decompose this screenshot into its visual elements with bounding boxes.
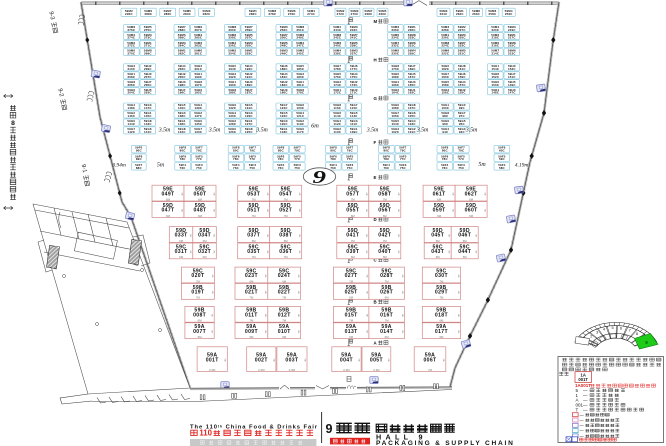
svg-text:3M: 3M [367,291,369,294]
svg-text:191C: 191C [245,75,253,79]
svg-text:150C: 150C [491,83,499,87]
svg-text:76C: 76C [330,166,337,170]
svg-text:229C: 229C [408,52,416,56]
svg-text:029T: 029T [435,290,449,296]
svg-text:131C: 131C [245,106,253,110]
svg-text:89C: 89C [136,157,143,161]
svg-text:186C: 186C [280,67,288,71]
svg-text:272C: 272C [127,44,135,48]
svg-text:014T: 014T [380,329,394,335]
svg-text:199C: 199C [194,75,202,79]
svg-text:102C: 102C [391,130,399,134]
svg-text:256C: 256C [228,44,236,48]
svg-text:6M: 6M [203,239,208,243]
svg-text:184C: 184C [280,75,288,79]
svg-text:6M: 6M [284,239,289,243]
svg-text:77C: 77C [347,157,354,161]
svg-text:010T: 010T [278,329,292,335]
svg-text:3M: 3M [444,359,446,362]
svg-text:8: 8 [11,120,15,127]
svg-text:286C: 286C [164,12,172,16]
svg-text:5m: 5m [157,163,164,169]
svg-text:243C: 243C [350,28,358,32]
svg-text:7M: 7M [383,197,388,201]
svg-text:263C: 263C [194,44,202,48]
svg-text:178C: 178C [333,67,341,71]
svg-text:7M: 7M [252,214,257,218]
svg-text:270C: 270C [351,12,359,16]
svg-text:3M: 3M [485,209,487,212]
svg-text:7M: 7M [284,197,289,201]
svg-text:7M: 7M [385,319,390,323]
svg-text:3M: 3M [268,192,270,195]
svg-text:3M: 3M [453,209,455,212]
svg-text:80C: 80C [383,149,390,153]
svg-text:6M: 6M [383,214,388,218]
svg-text:133C: 133C [194,130,202,134]
svg-text:4.19m: 4.19m [515,162,529,169]
svg-text:3M: 3M [399,234,401,237]
svg-text:7M: 7M [282,319,287,323]
svg-text:78C: 78C [442,157,449,161]
svg-text:3M: 3M [266,314,268,317]
svg-text:117C: 117C [297,130,305,134]
svg-text:7M: 7M [249,296,254,300]
svg-text:3.5m: 3.5m [366,128,379,134]
svg-text:262C: 262C [456,12,464,16]
svg-text:157C: 157C [458,83,466,87]
svg-text:76C: 76C [180,166,187,170]
svg-text:0.3M: 0.3M [258,368,265,372]
svg-text:136C: 136C [178,122,186,126]
svg-text:6M: 6M [249,335,254,339]
svg-text:235C: 235C [408,28,416,32]
svg-text:80C: 80C [442,149,449,153]
svg-text:193C: 193C [245,67,253,71]
svg-text:79C: 79C [400,149,407,153]
svg-text:128C: 128C [228,122,236,126]
svg-text:9: 9 [645,340,648,345]
svg-text:88C: 88C [136,166,143,170]
svg-text:3M: 3M [402,291,404,294]
svg-text:228C: 228C [441,28,449,32]
svg-text:240C: 240C [333,44,341,48]
svg-text:3M: 3M [268,234,270,237]
svg-text:7M: 7M [439,296,444,300]
svg-text:280C: 280C [249,12,257,16]
svg-text:94C: 94C [442,130,449,134]
svg-text:258C: 258C [228,36,236,40]
svg-text:75C: 75C [347,166,354,170]
svg-text:005T: 005T [370,357,384,363]
svg-text:3M: 3M [212,274,214,277]
svg-text:181C: 181C [296,83,304,87]
svg-text:3M: 3M [459,330,461,333]
svg-text:3M: 3M [300,209,302,212]
svg-text:266C: 266C [379,12,387,16]
svg-text:78C: 78C [330,157,337,161]
svg-text:3M: 3M [476,250,478,253]
svg-text:59C: 59C [499,157,506,161]
svg-text:6: 6 [620,325,622,330]
svg-text:202C: 202C [178,67,186,71]
svg-text:147C: 147C [144,106,152,110]
svg-text:262C: 262C [178,52,186,56]
svg-text:6M: 6M [463,239,468,243]
svg-text:60C: 60C [499,149,506,153]
svg-text:7M: 7M [439,279,444,283]
svg-text:111C: 111C [350,122,358,126]
svg-text:115C: 115C [350,106,358,110]
svg-text:6M: 6M [437,197,442,201]
svg-text:192C: 192C [228,75,236,79]
svg-text:3M: 3M [485,192,487,195]
svg-text:156C: 156C [441,91,449,95]
svg-text:3M: 3M [225,359,227,362]
svg-text:77C: 77C [196,157,203,161]
svg-text:189C: 189C [245,83,253,87]
svg-text:270C: 270C [127,52,135,56]
svg-text:142C: 142C [127,130,135,134]
svg-text:99C: 99C [459,106,466,110]
svg-text:3.5m: 3.5m [465,128,478,134]
svg-text:197C: 197C [194,83,202,87]
svg-text:77C: 77C [458,157,465,161]
svg-text:274C: 274C [127,36,135,40]
svg-text:7M: 7M [249,319,254,323]
svg-text:101C: 101C [408,130,416,134]
svg-text:6M: 6M [439,335,444,339]
svg-text:036T: 036T [279,249,293,255]
svg-text:218C: 218C [491,36,499,40]
svg-text:75C: 75C [294,166,301,170]
svg-text:148C: 148C [491,91,499,95]
svg-text:98C: 98C [442,114,449,118]
svg-text:153C: 153C [508,67,516,71]
svg-text:3M: 3M [389,359,391,362]
svg-text:190C: 190C [228,83,236,87]
svg-text:PACKAGING & SUPPLY CHAIN: PACKAGING & SUPPLY CHAIN [376,440,515,446]
svg-text:M: M [374,19,378,24]
svg-text:143C: 143C [144,122,152,126]
svg-text:77C: 77C [250,157,257,161]
svg-text:194C: 194C [228,67,236,71]
svg-text:054T: 054T [279,191,293,197]
svg-text:265C: 265C [194,36,202,40]
svg-text:3M: 3M [268,209,270,212]
svg-text:046T: 046T [458,233,472,239]
svg-text:057T: 057T [346,191,360,197]
svg-text:223C: 223C [458,44,466,48]
svg-text:6M: 6M [166,214,171,218]
svg-text:023T: 023T [245,273,259,279]
svg-text:75C: 75C [458,166,465,170]
svg-text:225C: 225C [458,36,466,40]
svg-text:3M: 3M [214,209,216,212]
svg-text:118C: 118C [280,130,288,134]
svg-text:3M: 3M [367,209,369,212]
svg-text:3M: 3M [214,234,216,237]
svg-text:6M: 6M [437,214,442,218]
svg-text:123C: 123C [296,106,304,110]
svg-text:97C: 97C [459,114,466,118]
svg-text:275C: 275C [144,28,152,32]
svg-text:3M: 3M [359,359,361,362]
svg-text:170C: 170C [391,67,399,71]
svg-text:3M: 3M [459,291,461,294]
svg-text:019T: 019T [191,290,205,296]
svg-text:026T: 026T [380,290,394,296]
svg-text:3M: 3M [367,330,369,333]
svg-text:160C: 160C [441,75,449,79]
svg-text:0.3M: 0.3M [373,368,380,372]
svg-text:3.5m: 3.5m [158,128,171,134]
svg-text:165C: 165C [408,83,416,87]
svg-text:6M: 6M [439,319,444,323]
svg-text:187C: 187C [245,91,253,95]
svg-text:2: 2 [590,334,592,339]
svg-text:042T: 042T [378,233,392,239]
svg-text:261C: 261C [194,52,202,56]
svg-text:110: 110 [199,429,212,438]
svg-text:108C: 108C [391,106,399,110]
svg-text:001T: 001T [206,357,220,363]
svg-text:80C: 80C [330,149,337,153]
svg-text:013T: 013T [345,329,359,335]
svg-text:183C: 183C [296,75,304,79]
svg-text:B: B [374,299,377,304]
svg-text:151C: 151C [508,75,516,79]
svg-text:6M: 6M [198,335,203,339]
svg-text:028T: 028T [380,273,394,279]
svg-text:251C: 251C [296,28,304,32]
svg-text:6M: 6M [249,279,254,283]
svg-text:114C: 114C [334,114,342,118]
svg-text:3M: 3M [266,274,268,277]
svg-text:125C: 125C [245,130,253,134]
svg-text:6M: 6M [351,214,356,218]
svg-text:3M: 3M [191,250,193,253]
svg-text:140C: 140C [178,106,186,110]
svg-text:3M: 3M [299,274,301,277]
svg-text:022T: 022T [278,290,292,296]
svg-text:166C: 166C [391,83,399,87]
svg-text:6M: 6M [198,214,203,218]
svg-text:6m: 6m [311,123,319,130]
svg-text:78C: 78C [180,157,187,161]
svg-text:7M: 7M [428,368,433,372]
svg-text:290C: 290C [125,12,133,16]
svg-text:276C: 276C [127,28,135,32]
svg-text:213C: 213C [508,52,516,56]
svg-text:6M: 6M [349,335,354,339]
svg-text:047T: 047T [161,208,175,214]
svg-text:141C: 141C [144,130,152,134]
svg-text:007T: 007T [193,329,207,335]
svg-text:025T: 025T [345,290,359,296]
svg-text:7M: 7M [252,197,257,201]
svg-text:034T: 034T [198,233,212,239]
svg-text:3M: 3M [274,359,276,362]
svg-text:260C: 260C [472,12,480,16]
svg-text:035T: 035T [247,249,261,255]
svg-text:3M: 3M [399,192,401,195]
svg-text:3M: 3M [367,250,369,253]
svg-text:205C: 205C [144,83,152,87]
svg-text:246C: 246C [280,52,288,56]
svg-text:018T: 018T [435,313,449,319]
svg-text:203C: 203C [144,91,152,95]
svg-text:195C: 195C [194,91,202,95]
svg-text:268C: 268C [178,28,186,32]
svg-text:234C: 234C [391,36,399,40]
svg-text:021T: 021T [245,290,259,296]
svg-text:7M: 7M [385,279,390,283]
svg-text:273C: 273C [144,36,152,40]
svg-text:238C: 238C [333,52,341,56]
svg-text:167C: 167C [408,75,416,79]
svg-text:048T: 048T [193,208,207,214]
svg-text:—: — [583,407,588,412]
svg-text:3M: 3M [212,314,214,317]
svg-text:030T: 030T [435,273,449,279]
svg-text:206C: 206C [127,83,135,87]
svg-text:129C: 129C [245,114,253,118]
svg-text:9: 9 [313,167,327,187]
svg-text:258C: 258C [489,12,497,16]
svg-text:264C: 264C [178,44,186,48]
svg-text:76C: 76C [278,166,285,170]
svg-text:132C: 132C [228,106,236,110]
svg-text:155C: 155C [458,91,466,95]
svg-text:119C: 119C [297,122,305,126]
svg-text:249C: 249C [296,36,304,40]
svg-text:224C: 224C [441,44,449,48]
svg-text:269C: 269C [144,52,152,56]
svg-text:3.94m: 3.94m [111,162,126,169]
svg-text:016T: 016T [380,313,394,319]
svg-text:3M: 3M [399,209,401,212]
svg-text:6M: 6M [203,255,208,259]
svg-text:173C: 173C [350,83,358,87]
svg-text:3.5m: 3.5m [416,128,429,134]
svg-text:241C: 241C [350,36,358,40]
svg-text:288C: 288C [144,12,152,16]
svg-text:5m: 5m [478,162,485,168]
svg-text:216C: 216C [491,44,499,48]
svg-text:144C: 144C [127,122,135,126]
svg-text:80C: 80C [278,149,285,153]
svg-text:96C: 96C [442,122,449,126]
svg-text:282C: 282C [203,12,211,16]
svg-text:7M: 7M [383,239,388,243]
svg-text:79C: 79C [250,149,257,153]
svg-text:6M: 6M [351,255,356,259]
svg-text:3M: 3M [367,234,369,237]
svg-text:130C: 130C [228,114,236,118]
svg-text:3M: 3M [453,192,455,195]
svg-text:188C: 188C [228,91,236,95]
svg-text:76C: 76C [383,166,390,170]
svg-text:H: H [374,57,377,62]
svg-text:104C: 104C [391,122,399,126]
svg-text:038T: 038T [279,233,293,239]
svg-text:250C: 250C [280,36,288,40]
svg-text:220C: 220C [491,28,499,32]
svg-text:6M: 6M [179,239,184,243]
svg-text:027T: 027T [345,273,359,279]
svg-text:039T: 039T [346,249,360,255]
svg-text:271C: 271C [144,44,152,48]
svg-text:121C: 121C [296,114,304,118]
svg-text:6M: 6M [252,239,257,243]
svg-text:044T: 044T [458,249,472,255]
svg-text:3M: 3M [449,250,451,253]
svg-text:045T: 045T [431,233,445,239]
svg-text:75C: 75C [250,166,257,170]
svg-text:T: T [576,407,579,412]
svg-text:268C: 268C [365,12,373,16]
svg-text:105C: 105C [408,114,416,118]
svg-text:80C: 80C [180,149,187,153]
svg-text:3M: 3M [402,314,404,317]
svg-text:198C: 198C [178,83,186,87]
svg-text:217C: 217C [508,36,516,40]
svg-text:236C: 236C [391,28,399,32]
svg-text:3M: 3M [367,192,369,195]
svg-text:051T: 051T [247,208,261,214]
svg-text:254C: 254C [228,52,236,56]
svg-text:146C: 146C [127,114,135,118]
svg-text:148C: 148C [127,106,135,110]
svg-text:6M: 6M [198,319,203,323]
svg-text:059T: 059T [433,208,447,214]
svg-text:274C: 274C [307,12,315,16]
svg-text:106C: 106C [391,114,399,118]
svg-text:6M: 6M [385,335,390,339]
svg-text:259C: 259C [245,28,253,32]
svg-text:266C: 266C [178,36,186,40]
svg-text:232C: 232C [391,44,399,48]
svg-text:78C: 78C [278,157,285,161]
svg-text:75C: 75C [400,166,407,170]
svg-text:164C: 164C [391,91,399,95]
svg-text:79C: 79C [347,149,354,153]
svg-text:58C: 58C [499,166,506,170]
svg-text:3M: 3M [459,314,461,317]
svg-text:159C: 159C [458,75,466,79]
svg-text:7M: 7M [349,279,354,283]
svg-text:200C: 200C [178,75,186,79]
svg-text:6M: 6M [436,239,441,243]
svg-text:6M: 6M [436,255,441,259]
svg-text:3M: 3M [300,234,302,237]
svg-text:127C: 127C [245,122,253,126]
svg-text:253C: 253C [245,52,253,56]
svg-text:116C: 116C [334,106,342,110]
svg-text:103C: 103C [408,122,416,126]
svg-text:7M: 7M [252,255,257,259]
svg-text:7M: 7M [284,214,289,218]
svg-text:247C: 247C [296,44,304,48]
svg-text:145C: 145C [144,114,152,118]
svg-text:90C: 90C [136,149,143,153]
svg-text:5: 5 [612,325,614,330]
svg-text:244C: 244C [333,28,341,32]
svg-text:168C: 168C [391,75,399,79]
svg-text:233C: 233C [408,36,416,40]
svg-text:219C: 219C [508,28,516,32]
